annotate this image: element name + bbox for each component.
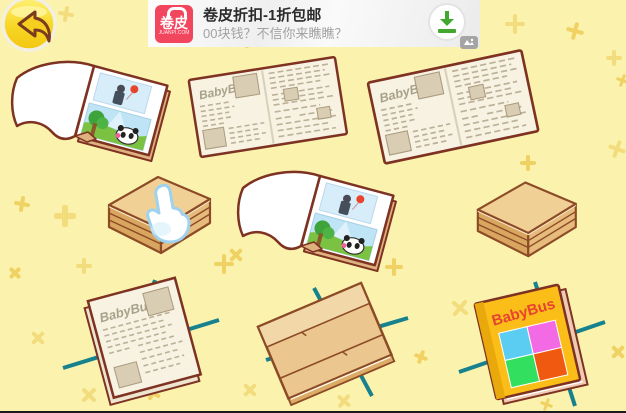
- game-screen: BabyBus BabyBus: [0, 0, 626, 413]
- finished-book-on-strings[interactable]: BabyBus: [459, 282, 605, 406]
- ad-title: 卷皮折扣-1折包邮: [203, 6, 347, 25]
- back-button[interactable]: [1, 0, 59, 55]
- newspaper-bundle-on-strings[interactable]: BabyBus: [63, 278, 219, 405]
- back-arrow-icon: [1, 0, 59, 55]
- download-icon: [430, 5, 464, 39]
- folded-sheet-on-strings[interactable]: [258, 283, 408, 405]
- open-picture-book-1[interactable]: [12, 62, 171, 161]
- ad-text-block: 卷皮折扣-1折包邮 00块钱？不信你来瞧瞧？: [203, 6, 347, 42]
- ad-subtitle: 00块钱？不信你来瞧瞧？: [203, 25, 347, 42]
- ad-provider-badge-icon[interactable]: [460, 36, 478, 49]
- folded-box-with-hand[interactable]: [109, 177, 210, 253]
- ad-logo: 卷皮 JUANPI.COM: [155, 5, 193, 43]
- folded-box[interactable]: [478, 182, 576, 256]
- ad-logo-domain: JUANPI.COM: [155, 30, 193, 37]
- open-picture-book-2[interactable]: [238, 172, 397, 271]
- shopping-bag-icon: [167, 7, 187, 19]
- folding-game-stage: BabyBus BabyBus: [0, 0, 626, 413]
- open-newspaper-2[interactable]: BabyBus: [368, 50, 539, 163]
- ad-banner[interactable]: 卷皮 JUANPI.COM 卷皮折扣-1折包邮 00块钱？不信你来瞧瞧？: [148, 0, 480, 47]
- open-newspaper-1[interactable]: BabyBus: [189, 57, 347, 157]
- download-button[interactable]: [430, 5, 464, 39]
